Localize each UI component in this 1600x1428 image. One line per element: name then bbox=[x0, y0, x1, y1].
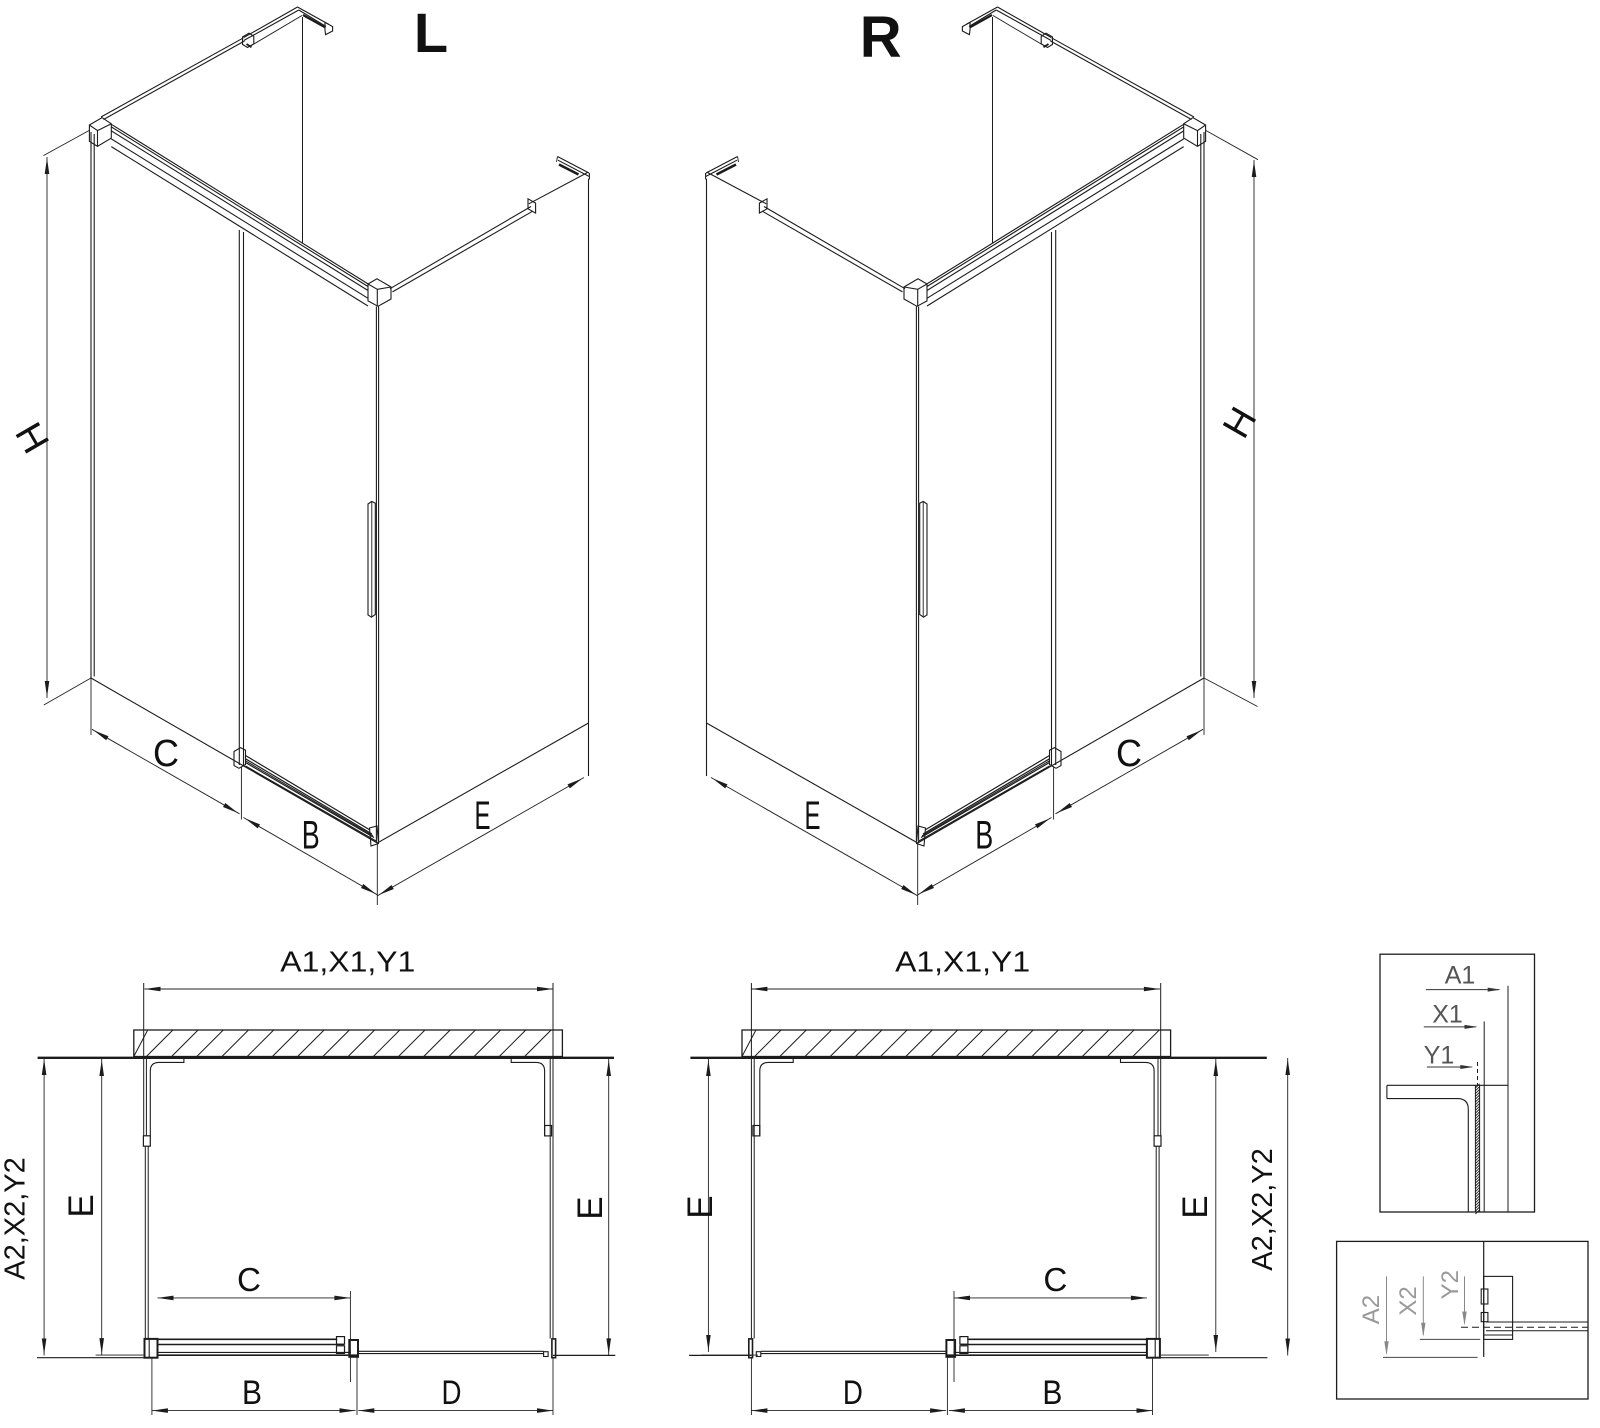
svg-text:E: E bbox=[805, 794, 821, 838]
svg-text:C: C bbox=[153, 733, 179, 775]
svg-text:A1,X1,Y1: A1,X1,Y1 bbox=[895, 947, 1030, 979]
svg-text:A1: A1 bbox=[1445, 962, 1476, 990]
svg-text:E: E bbox=[681, 1195, 720, 1218]
svg-text:X2: X2 bbox=[1395, 1286, 1422, 1315]
svg-text:A1,X1,Y1: A1,X1,Y1 bbox=[280, 947, 415, 979]
svg-text:E: E bbox=[571, 1196, 610, 1219]
svg-text:Y2: Y2 bbox=[1437, 1270, 1464, 1299]
svg-text:D: D bbox=[442, 1374, 462, 1412]
svg-text:E: E bbox=[62, 1194, 101, 1217]
svg-text:A2,X2,Y2: A2,X2,Y2 bbox=[1247, 1148, 1279, 1271]
svg-text:E: E bbox=[1176, 1195, 1215, 1218]
svg-text:B: B bbox=[975, 814, 993, 858]
svg-text:E: E bbox=[475, 794, 491, 838]
svg-text:A2,X2,Y2: A2,X2,Y2 bbox=[0, 1157, 32, 1280]
svg-text:A2: A2 bbox=[1358, 1295, 1385, 1324]
svg-text:B: B bbox=[242, 1374, 262, 1412]
svg-text:R: R bbox=[860, 5, 902, 70]
svg-text:Y1: Y1 bbox=[1424, 1042, 1455, 1070]
svg-text:X1: X1 bbox=[1432, 1001, 1463, 1029]
svg-text:D: D bbox=[843, 1374, 863, 1412]
svg-text:C: C bbox=[1043, 1261, 1067, 1298]
svg-text:B: B bbox=[1042, 1374, 1062, 1412]
svg-text:C: C bbox=[1116, 733, 1142, 775]
svg-text:B: B bbox=[302, 814, 320, 858]
svg-text:C: C bbox=[237, 1261, 261, 1298]
svg-text:L: L bbox=[414, 1, 448, 64]
